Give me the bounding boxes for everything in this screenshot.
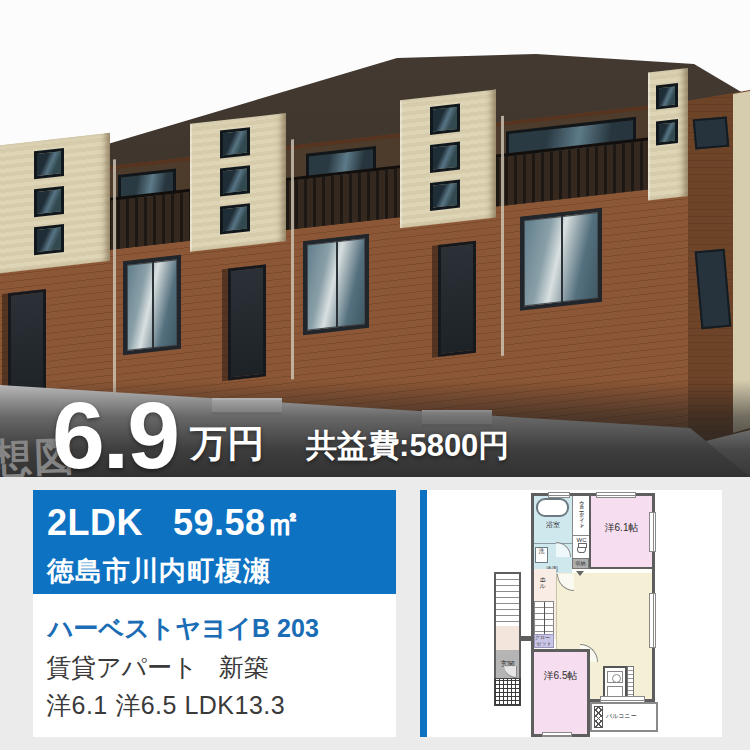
facade-panel <box>0 133 110 274</box>
drainpipe <box>113 159 116 399</box>
fp-entrance-block: 玄関 <box>494 572 521 706</box>
toilet-icon <box>577 545 586 553</box>
facade-panel <box>400 90 496 229</box>
panel-window <box>430 142 460 173</box>
rent-price-unit: 万円 <box>190 419 264 469</box>
price-row: 6.9 万円 共益費:5800円 <box>52 398 509 477</box>
panel-window <box>34 186 64 217</box>
entrance-door <box>228 264 266 380</box>
rent-price: 6.9 <box>52 398 178 472</box>
fp-toilet-room: WC <box>572 536 589 558</box>
fp-sliding-door <box>600 696 645 703</box>
fp-landing <box>496 626 519 650</box>
arrow-icon <box>576 571 584 576</box>
fp-porch-hatch <box>494 678 521 706</box>
bathtub-icon <box>536 498 569 517</box>
panel-window <box>656 119 678 145</box>
floorplan-image: 玄関 浴室 洗 洗面 ウォークイン クローゼット WC <box>420 490 722 737</box>
first-floor-window <box>303 234 369 335</box>
bedroom2-label: 洋6.5帖 <box>534 670 587 681</box>
rooms-summary: 洋6.1 洋6.5 LDK13.3 <box>46 689 285 722</box>
closet-label-2: ゼット <box>535 641 553 647</box>
floorplan-card[interactable]: 玄関 浴室 洗 洗面 ウォークイン クローゼット WC <box>420 490 722 737</box>
facade-panel <box>648 68 688 200</box>
balcony-hatch-icon <box>594 706 603 728</box>
fp-bathroom: 浴室 <box>534 496 572 543</box>
fp-window <box>548 492 570 498</box>
listing-card[interactable]: 2LDK 59.58㎡ 徳島市川内町榎瀬 ハーベストヤヨイB 203 賃貸アパー… <box>33 490 396 737</box>
balcony-label: バルコニー <box>606 713 637 720</box>
fp-window <box>596 492 636 498</box>
layout-type: 2LDK <box>47 502 143 544</box>
property-category: 賃貸アパート 新築 <box>46 651 269 684</box>
hall-label: ホール <box>539 572 546 602</box>
category-label: 賃貸アパート <box>46 653 198 681</box>
fp-window <box>649 593 656 648</box>
panel-window <box>430 180 460 211</box>
first-floor-window <box>520 208 602 311</box>
wic-label-2: クローゼット <box>578 497 584 526</box>
panel-window <box>34 224 64 255</box>
side-window <box>693 117 729 150</box>
first-floor-window <box>123 255 181 356</box>
facade-panel <box>190 113 286 252</box>
bedroom1-label: 洋6.1帖 <box>591 522 652 533</box>
drainpipe <box>501 116 504 356</box>
bath-label: 浴室 <box>534 521 572 529</box>
washer-icon: 洗 <box>535 547 548 563</box>
panel-window <box>34 148 64 179</box>
panel-window <box>656 83 678 109</box>
fp-outdoor-stairs <box>496 574 519 626</box>
fp-window <box>542 732 572 737</box>
fp-walkin-closet: ウォークイン クローゼット <box>572 496 589 536</box>
storage-label: 収納 <box>576 561 586 567</box>
fp-bedroom-1: 洋6.1帖 <box>589 496 652 569</box>
balcony-railing <box>108 189 190 250</box>
condition-label: 新築 <box>219 653 269 681</box>
fp-balcony: バルコニー <box>590 702 658 732</box>
fp-storage: 収納 <box>572 558 589 569</box>
common-fee: 共益費:5800円 <box>306 425 509 467</box>
fp-window <box>649 512 656 552</box>
property-name-link[interactable]: ハーベストヤヨイB 203 <box>48 612 319 645</box>
panel-window <box>430 104 460 135</box>
fp-bedroom-2: 洋6.5帖 <box>531 649 590 737</box>
panel-window <box>220 203 250 234</box>
panel-window <box>220 165 250 196</box>
drainpipe <box>291 139 294 379</box>
panel-window <box>220 127 250 158</box>
address: 徳島市川内町榎瀬 <box>47 553 382 589</box>
property-photo[interactable]: 想図 6.9 万円 共益費:5800円 <box>0 0 750 477</box>
entrance-door <box>438 241 476 357</box>
listing-header: 2LDK 59.58㎡ 徳島市川内町榎瀬 <box>33 490 396 594</box>
floor-area: 59.58㎡ <box>173 499 302 548</box>
fp-closet: クロー ゼット <box>534 634 554 648</box>
